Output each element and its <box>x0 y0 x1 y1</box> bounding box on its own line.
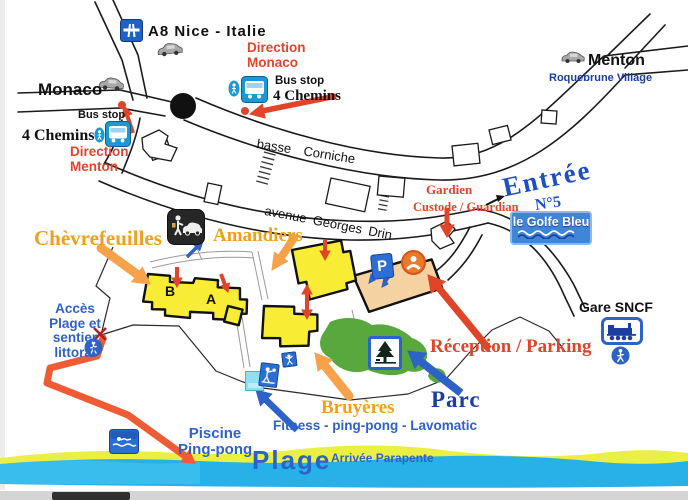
sea-shallow-tint <box>0 460 200 484</box>
stairs-crossing-1 <box>256 152 275 184</box>
car-icon-menton <box>560 49 586 66</box>
parking-p-icon: P <box>370 253 394 280</box>
acces-line1: Accès <box>36 302 114 317</box>
direction-menton-line2: Menton <box>70 160 129 175</box>
custode-guardian-label: Custode / Guardian <box>413 201 519 215</box>
gardien-label: Gardien <box>426 183 472 197</box>
reception-parking-label: Réception / Parking <box>430 337 592 358</box>
bus-stop-dot-top <box>241 107 249 115</box>
piscine-line1: Piscine <box>178 426 252 442</box>
pingpong-icon <box>258 362 280 388</box>
plage-label: Plage <box>252 446 331 474</box>
acces-line4: littoral <box>36 346 114 361</box>
bruyeres-label: Bruyères <box>321 398 395 419</box>
building-small <box>224 306 242 325</box>
motorway-icon <box>120 19 143 42</box>
golfe-bleu-sign-text: le Golfe Bleu <box>512 213 590 229</box>
swimmer-sign-icon <box>109 429 139 454</box>
arrivee-parapente-label: Arrivée Parapente <box>331 452 434 465</box>
parking-letter: P <box>376 257 388 275</box>
roundabout <box>170 93 196 119</box>
chevrefeuilles-label: Chèvrefeuilles <box>34 227 162 250</box>
valet-parking-icon <box>167 209 205 245</box>
scan-edge <box>0 0 5 490</box>
car-icon-a8 <box>155 39 185 60</box>
menton-label: Menton <box>588 52 645 69</box>
monaco-label: Monaco <box>38 81 102 99</box>
quatre-chemins-left-label: 4 Chemins <box>22 127 94 144</box>
walker-circle-icon-gare <box>611 346 630 365</box>
pedestrian-oval-icon-left <box>94 127 105 143</box>
bus-stop-left-label: Bus stop <box>78 110 125 122</box>
direction-menton-label: Direction Menton <box>70 145 129 174</box>
acces-line3: sentier <box>36 331 114 346</box>
entree-number-label: N°5 <box>534 193 562 214</box>
golfe-bleu-sign: le Golfe Bleu <box>510 211 592 245</box>
fitness-icon <box>281 351 298 368</box>
tree-sign-icon <box>368 336 402 370</box>
scan-dark-mark <box>52 492 130 500</box>
piscine-label: Piscine Ping-pong <box>178 426 252 458</box>
direction-monaco-line1: Direction <box>247 41 306 56</box>
direction-menton-line1: Direction <box>70 145 129 160</box>
building-b-label: B <box>165 284 175 299</box>
a8-label: A8 Nice - Italie <box>148 24 267 40</box>
bus-stop-top-label: Bus stop <box>275 75 324 87</box>
direction-monaco-label: Direction Monaco <box>247 41 306 70</box>
train-sign-icon <box>601 317 643 345</box>
campsite-access-map: P le Golfe Bleu <box>0 0 688 500</box>
gare-sncf-label: Gare SNCF <box>579 300 653 315</box>
acces-plage-label: Accès Plage et sentier littoral <box>36 302 114 360</box>
fitness-pingpong-lavomatic-label: Fitness - ping-pong - Lavomatic <box>273 419 477 434</box>
acces-line2: Plage et <box>36 317 114 332</box>
roquebrune-label: Roquebrune Village <box>549 73 652 85</box>
piscine-line2: Ping-pong <box>178 442 252 458</box>
bus-stop-icon-top <box>241 76 268 103</box>
amandiers-label: Amandiers <box>213 226 303 247</box>
pedestrian-oval-icon-top <box>228 80 240 97</box>
direction-monaco-line2: Monaco <box>247 56 306 71</box>
building-a-label: A <box>206 292 216 307</box>
parc-label: Parc <box>431 388 481 413</box>
reception-person-icon <box>401 250 426 275</box>
quatre-chemins-top-label: 4 Chemins <box>273 88 341 104</box>
